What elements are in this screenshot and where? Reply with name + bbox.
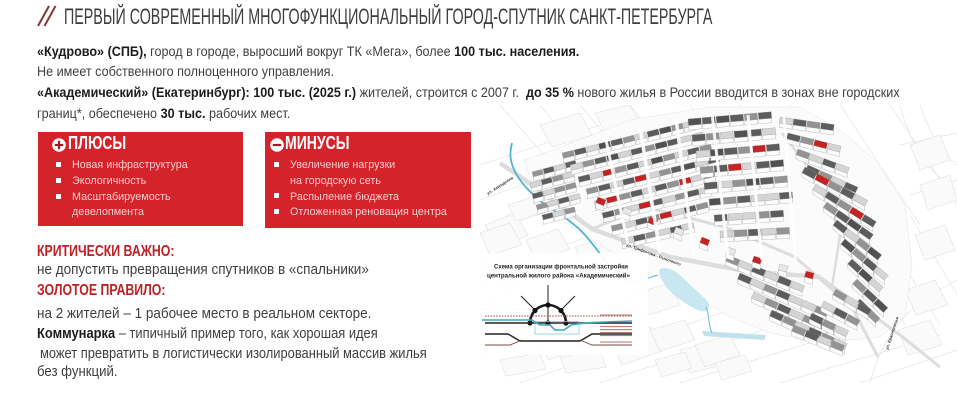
svg-text:центральной жилого района «Ака: центральной жилого района «Академический…	[487, 273, 631, 280]
svg-text:Схема организации фронтальной: Схема организации фронтальной застройки	[494, 264, 628, 271]
